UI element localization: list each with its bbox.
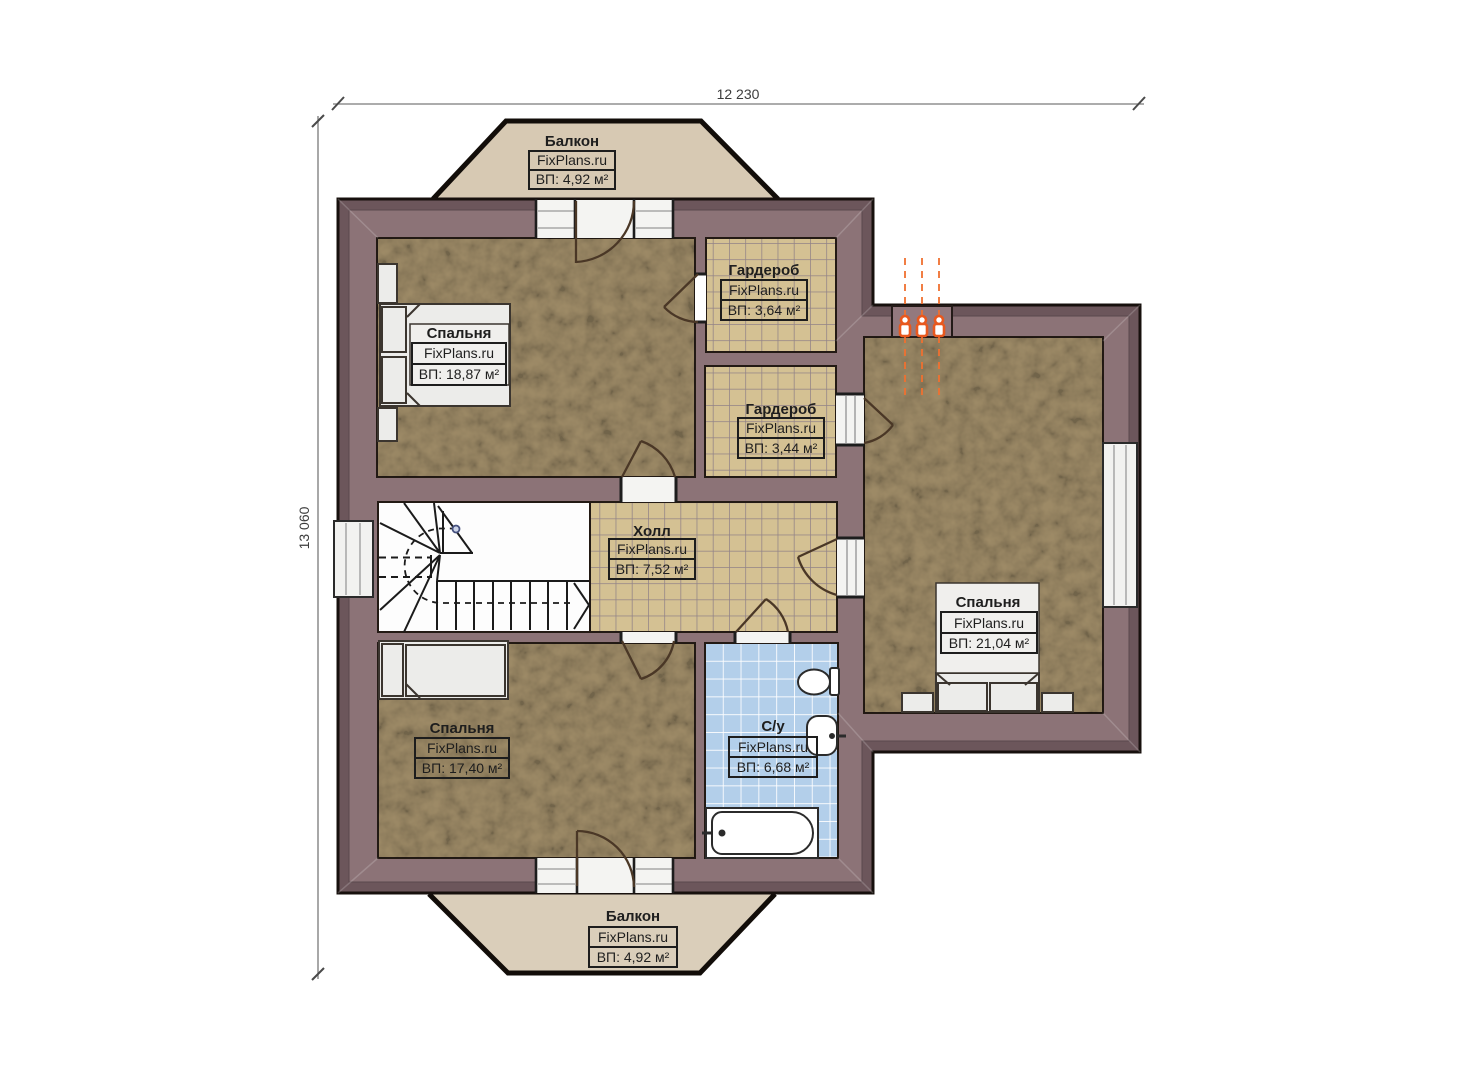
svg-text:ВП: 18,87 м²: ВП: 18,87 м² [419,366,500,382]
svg-text:Гардероб: Гардероб [746,401,817,418]
svg-text:FixPlans.ru: FixPlans.ru [729,282,799,298]
svg-text:ВП: 17,40 м²: ВП: 17,40 м² [422,760,503,776]
svg-text:ВП: 4,92 м²: ВП: 4,92 м² [597,949,670,965]
svg-text:FixPlans.ru: FixPlans.ru [598,929,668,945]
svg-text:FixPlans.ru: FixPlans.ru [424,345,494,361]
svg-text:FixPlans.ru: FixPlans.ru [954,615,1024,631]
svg-text:FixPlans.ru: FixPlans.ru [617,541,687,557]
svg-text:FixPlans.ru: FixPlans.ru [746,420,816,436]
svg-text:Гардероб: Гардероб [729,262,800,279]
svg-text:ВП: 21,04 м²: ВП: 21,04 м² [949,635,1030,651]
svg-text:FixPlans.ru: FixPlans.ru [738,739,808,755]
svg-text:Спальня: Спальня [430,720,495,737]
svg-text:С/у: С/у [761,718,785,735]
svg-text:Холл: Холл [633,523,671,540]
svg-text:13 060: 13 060 [296,506,312,549]
svg-text:Балкон: Балкон [545,133,599,150]
svg-text:Спальня: Спальня [956,594,1021,611]
svg-text:12 230: 12 230 [717,86,760,102]
svg-text:ВП: 6,68 м²: ВП: 6,68 м² [737,759,810,775]
svg-text:ВП: 3,64 м²: ВП: 3,64 м² [728,302,801,318]
svg-text:Балкон: Балкон [606,908,660,925]
svg-text:ВП: 4,92 м²: ВП: 4,92 м² [536,171,609,187]
svg-text:Спальня: Спальня [427,325,492,342]
svg-text:ВП: 3,44 м²: ВП: 3,44 м² [745,440,818,456]
svg-text:ВП: 7,52 м²: ВП: 7,52 м² [616,561,689,577]
svg-text:FixPlans.ru: FixPlans.ru [537,152,607,168]
svg-text:FixPlans.ru: FixPlans.ru [427,740,497,756]
